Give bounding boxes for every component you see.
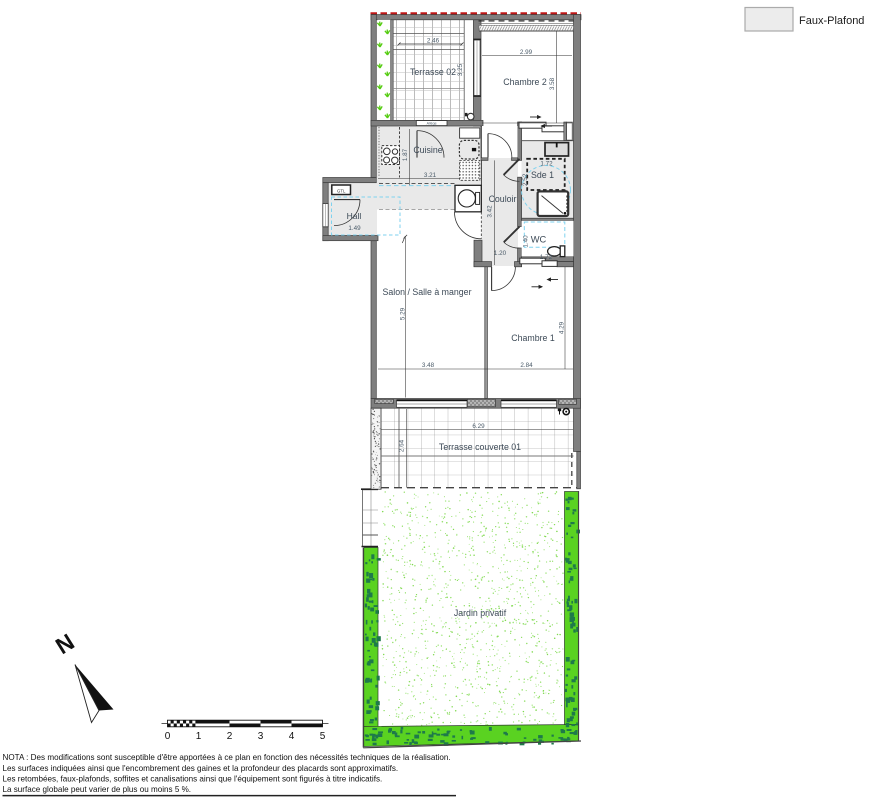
svg-text:Chambre 1: Chambre 1 <box>511 333 555 343</box>
svg-text:1.49: 1.49 <box>348 225 361 232</box>
svg-text:3.21: 3.21 <box>424 172 437 179</box>
svg-text:2.52: 2.52 <box>522 173 529 186</box>
svg-text:1: 1 <box>196 731 202 742</box>
svg-text:5.29: 5.29 <box>400 307 407 320</box>
svg-text:2.64: 2.64 <box>399 439 406 452</box>
svg-text:5: 5 <box>320 731 326 742</box>
svg-text:Les retombées, faux-plafonds,: Les retombées, faux-plafonds, soffites e… <box>3 774 383 783</box>
svg-text:1.20: 1.20 <box>494 250 507 257</box>
svg-text:Cuisine: Cuisine <box>413 145 442 155</box>
svg-text:Allège: Allège <box>427 121 437 125</box>
svg-text:2.84: 2.84 <box>520 362 533 369</box>
svg-text:3: 3 <box>258 731 264 742</box>
svg-text:Hall: Hall <box>347 211 362 221</box>
svg-text:Couloir: Couloir <box>489 194 517 204</box>
svg-text:NOTA : Des modifications sont: NOTA : Des modifications sont susceptibl… <box>3 753 451 762</box>
svg-text:GTL: GTL <box>337 189 346 194</box>
svg-text:Les surfaces indiquées ainsi q: Les surfaces indiquées ainsi que l'encom… <box>3 764 399 773</box>
svg-text:Sde 1: Sde 1 <box>531 170 554 180</box>
svg-text:Faux-Plafond: Faux-Plafond <box>799 15 864 27</box>
svg-text:3.42: 3.42 <box>487 205 494 218</box>
svg-text:Terrasse couverte 01: Terrasse couverte 01 <box>439 442 521 452</box>
svg-text:2.46: 2.46 <box>427 37 440 44</box>
svg-text:1.72: 1.72 <box>540 254 553 261</box>
svg-text:1.72: 1.72 <box>540 160 553 167</box>
svg-text:3.48: 3.48 <box>422 362 435 369</box>
svg-text:Salon / Salle à manger: Salon / Salle à manger <box>383 287 472 297</box>
svg-text:3.58: 3.58 <box>549 77 556 90</box>
svg-text:1.40: 1.40 <box>523 235 530 248</box>
svg-text:4: 4 <box>289 731 295 742</box>
svg-text:6.29: 6.29 <box>472 423 485 430</box>
svg-text:Jardin privatif: Jardin privatif <box>454 608 507 618</box>
svg-text:Chambre 2: Chambre 2 <box>503 77 547 87</box>
svg-text:1.87: 1.87 <box>402 148 409 161</box>
svg-text:0: 0 <box>165 731 171 742</box>
svg-text:3.25: 3.25 <box>457 63 464 76</box>
svg-text:2.99: 2.99 <box>520 49 533 56</box>
svg-text:WC: WC <box>531 235 547 245</box>
svg-text:2: 2 <box>227 731 233 742</box>
svg-text:La surface globale peut varier: La surface globale peut varier de plus o… <box>3 785 192 794</box>
svg-text:4.29: 4.29 <box>559 321 566 334</box>
svg-text:Terrasse 02: Terrasse 02 <box>410 67 456 77</box>
